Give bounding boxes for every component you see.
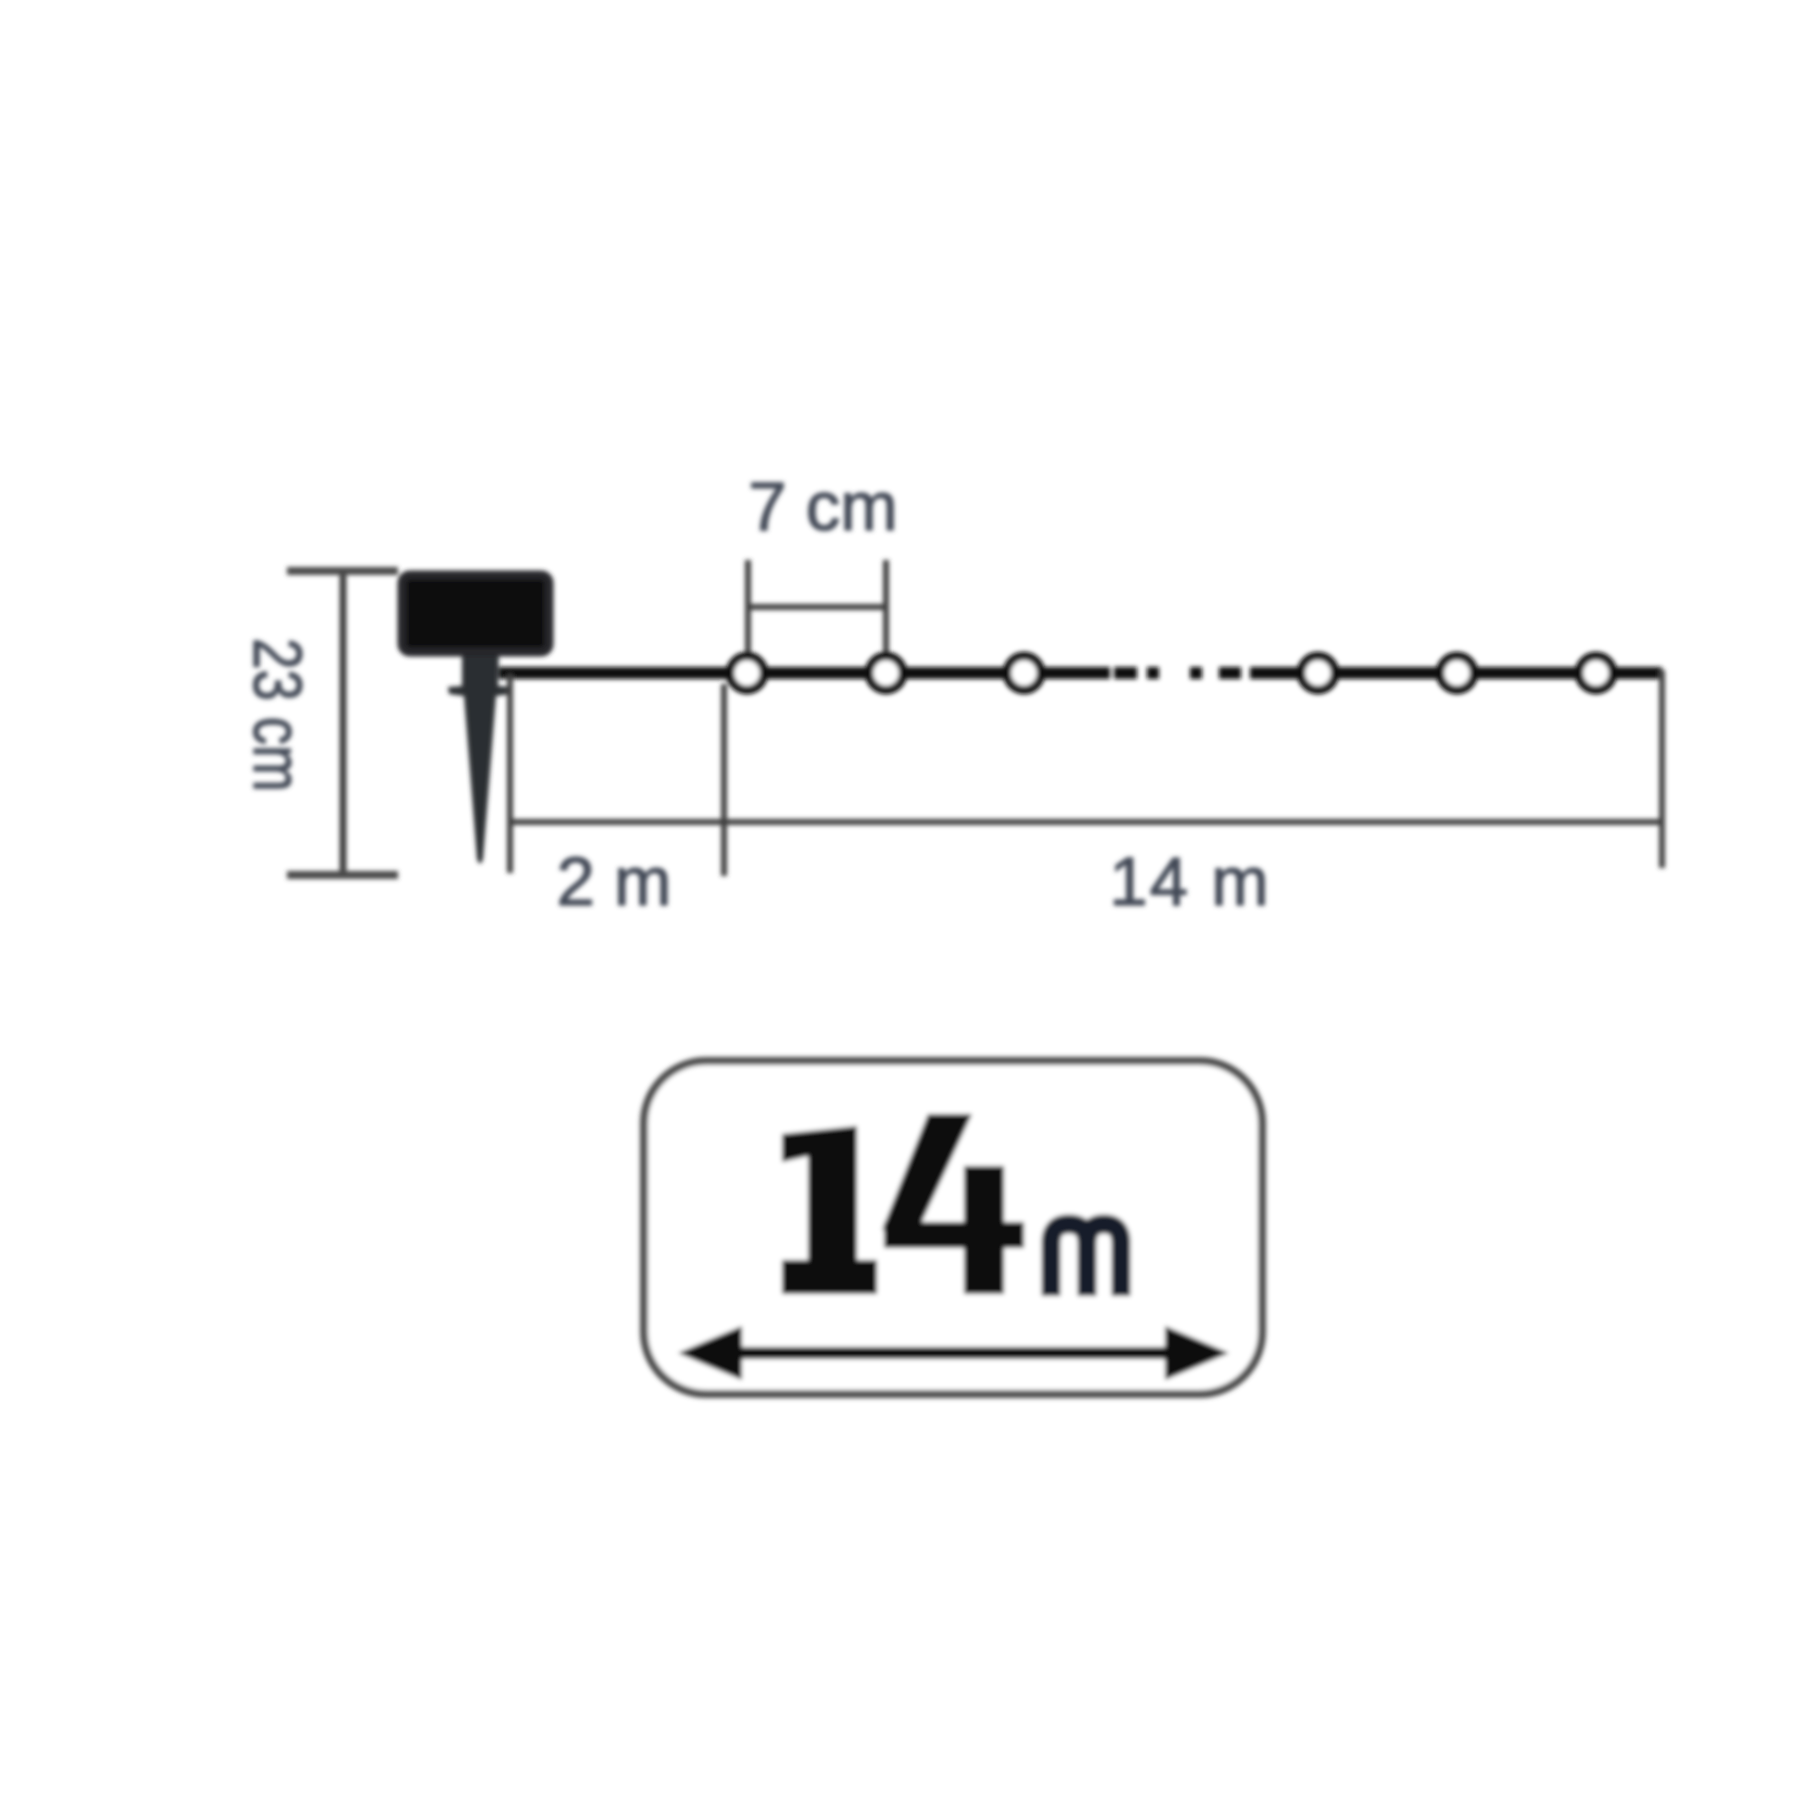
svg-text:23 cm: 23 cm <box>239 638 316 792</box>
svg-text:14 m: 14 m <box>1109 843 1270 920</box>
svg-text:7 cm: 7 cm <box>748 468 898 545</box>
svg-text:2 m: 2 m <box>556 843 671 920</box>
